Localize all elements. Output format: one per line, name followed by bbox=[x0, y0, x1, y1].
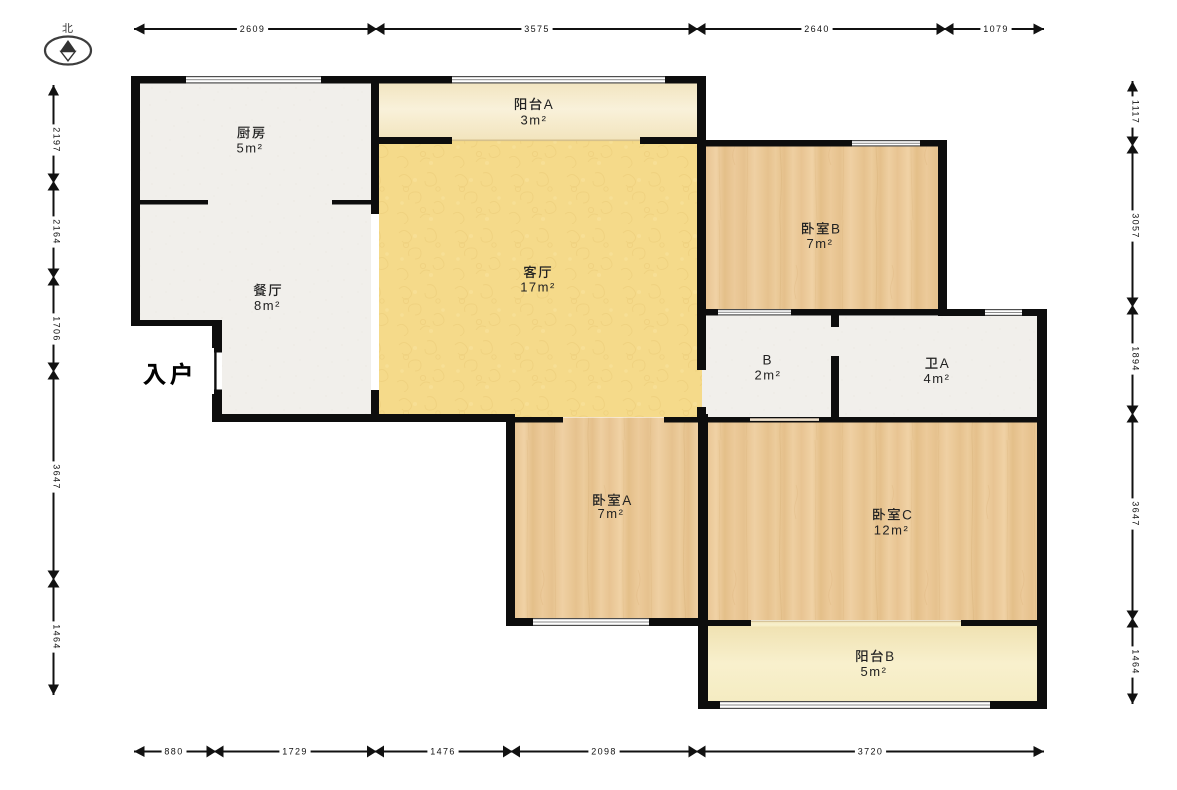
svg-text:1729: 1729 bbox=[282, 747, 308, 757]
svg-text:1894: 1894 bbox=[1130, 346, 1140, 372]
svg-text:3647: 3647 bbox=[1130, 501, 1140, 527]
svg-text:7m²: 7m² bbox=[807, 236, 834, 251]
svg-text:B: B bbox=[831, 222, 840, 237]
svg-text:1476: 1476 bbox=[430, 747, 456, 757]
svg-text:8m²: 8m² bbox=[254, 298, 281, 313]
svg-text:3720: 3720 bbox=[858, 747, 884, 757]
svg-text:1464: 1464 bbox=[51, 624, 61, 650]
svg-text:A: A bbox=[544, 97, 553, 112]
svg-text:2197: 2197 bbox=[51, 127, 61, 153]
svg-text:B: B bbox=[885, 649, 894, 664]
svg-text:3m²: 3m² bbox=[521, 113, 548, 128]
svg-text:880: 880 bbox=[164, 747, 183, 757]
svg-text:2m²: 2m² bbox=[755, 368, 782, 383]
svg-text:2640: 2640 bbox=[804, 24, 830, 34]
svg-text:2164: 2164 bbox=[51, 219, 61, 245]
svg-text:2609: 2609 bbox=[240, 24, 266, 34]
svg-text:3057: 3057 bbox=[1130, 213, 1140, 239]
svg-text:5m²: 5m² bbox=[237, 141, 264, 156]
svg-text:1706: 1706 bbox=[51, 316, 61, 342]
svg-text:A: A bbox=[940, 356, 949, 371]
svg-text:3575: 3575 bbox=[524, 24, 550, 34]
svg-text:1464: 1464 bbox=[1130, 649, 1140, 675]
svg-text:5m²: 5m² bbox=[861, 664, 888, 679]
svg-text:3647: 3647 bbox=[51, 464, 61, 490]
svg-text:1079: 1079 bbox=[983, 24, 1009, 34]
svg-text:4m²: 4m² bbox=[924, 371, 951, 386]
svg-text:2098: 2098 bbox=[591, 747, 617, 757]
svg-text:B: B bbox=[762, 353, 771, 368]
svg-text:17m²: 17m² bbox=[520, 280, 556, 295]
svg-text:12m²: 12m² bbox=[874, 523, 910, 538]
svg-text:C: C bbox=[902, 507, 912, 522]
svg-text:7m²: 7m² bbox=[598, 506, 625, 521]
svg-text:1117: 1117 bbox=[1130, 100, 1140, 124]
